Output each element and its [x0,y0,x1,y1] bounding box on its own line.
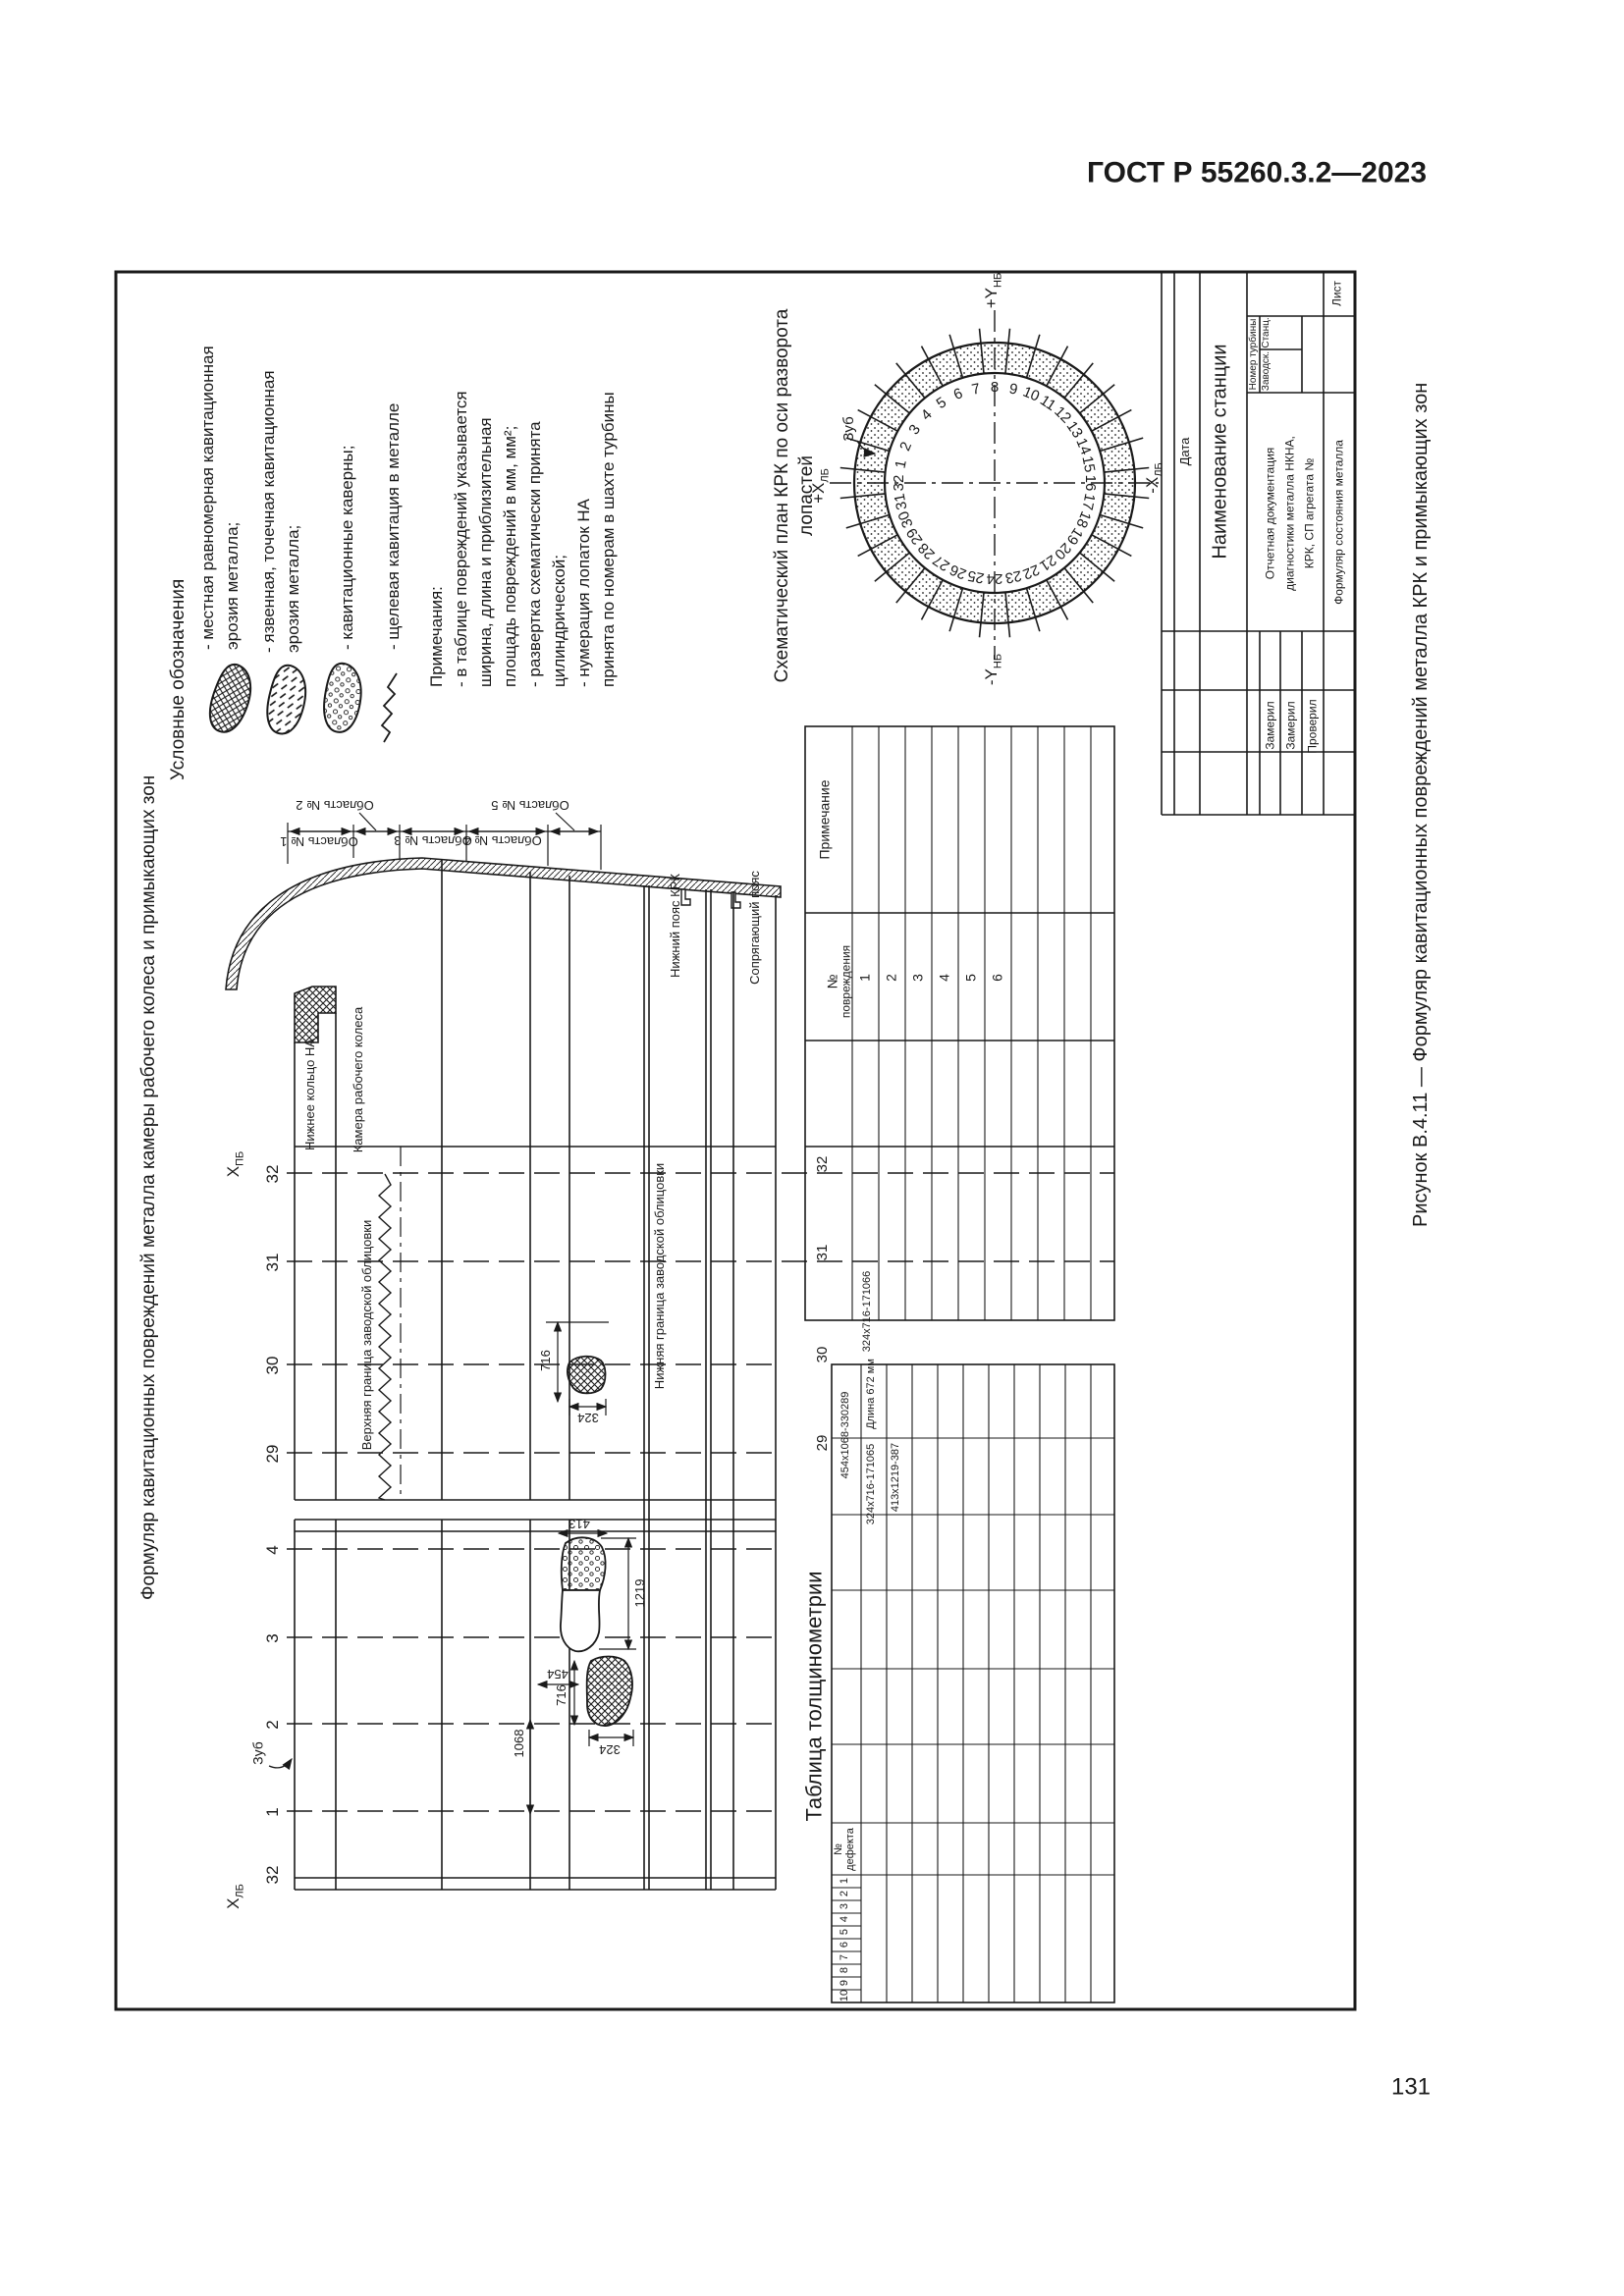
notes-line-2: - в таблице повреждений указывается [453,391,470,687]
development-grid [269,860,1114,1890]
thickness-row-number: 4 [839,1916,851,1922]
thickness-entry-2: Длина 672 мм [866,1359,878,1429]
damage-remark-header: Примечание [818,779,833,859]
upper-liner-boundary-label: Верхняя граница заводской облицовки [360,1220,374,1451]
legend-item-3-label: - кавитационные каверны; [339,446,356,650]
stamp-station-col-label: Станц. [1262,317,1272,347]
blade-number: 25 [966,567,985,586]
thickness-no-header-2: дефекта [845,1828,857,1871]
damage-row-number: 3 [911,974,926,982]
notes-line-1: Примечания: [428,586,446,687]
axis-label-x-plus: +ХЛБ [810,468,832,504]
form-title: Формуляр кавитационных повреждений метал… [139,775,159,1600]
damage-row-number: 4 [938,974,952,982]
axis-label-y-plus: +YНБ [983,273,1004,309]
section-number-upper: 32 [264,1165,282,1184]
stamp-turbine-no-label: Номер турбины [1249,319,1260,391]
upper-liner-zigzag [379,1174,391,1500]
blade-number: 23 [1003,567,1022,586]
legend-circles-blob-icon [322,663,363,734]
section-number-lower: 4 [264,1545,282,1554]
stamp-measured-2: Замерил [1285,701,1298,749]
axis-label-y-minus: -YНБ [983,654,1004,685]
damage-section-32: 32 [815,1156,831,1173]
thickness-entry-1: 454х1068-330289 [840,1392,852,1479]
stamp-measured-1: Замерил [1265,701,1277,749]
blade-number: 17 [1079,492,1098,510]
thickness-row-number: 8 [839,1967,851,1973]
rail-tooth [681,889,690,905]
zone-label-5: Область № 5 [491,798,568,812]
legend-dash-blob-icon [264,664,309,737]
legend-zigzag-icon [382,673,397,742]
dim-324-upper: 324 [577,1411,599,1424]
notes-line-6: цилиндрической; [551,555,568,687]
section-number-upper: 31 [264,1254,282,1272]
stamp-factory-col-label: Заводск. [1262,351,1272,391]
gost-header: ГОСТ Р 55260.3.2—2023 [1087,157,1427,188]
thickness-row-number: 5 [839,1929,851,1935]
damage-row-number: 6 [991,974,1005,982]
thickness-table-title: Таблица толщинометрии [802,1571,825,1821]
dim-716-lower: 716 [555,1684,568,1706]
damage-blob-crosshatch-upper [568,1357,606,1394]
band-label-ring: Нижнее кольцо НА [303,1039,317,1150]
section-number-lower: 3 [264,1633,282,1642]
blade-number: 8 [991,380,999,396]
thickness-entry-4: 413х1219-387 [891,1443,902,1512]
section-number-lower: 1 [264,1807,282,1816]
damage-no-header-1: № [826,974,840,988]
damage-no-header-2: повреждения [840,945,853,1018]
section-number-upper: 29 [264,1445,282,1464]
dim-454: 454 [547,1667,568,1681]
stamp-form-title: Формуляр состояния металла [1333,440,1346,605]
tooth-label-circle: Зуб [841,416,857,441]
blade-number: 32 [892,475,907,492]
notes-line-5: - развертка схематически принята [526,421,544,687]
damage-row-number: 1 [858,974,873,982]
stamp-doc-line-1: Отчетная документация [1265,448,1277,580]
dim-413: 413 [568,1517,590,1530]
damage-row-number: 5 [964,974,979,982]
thickness-row-number: 6 [839,1942,851,1948]
notes-line-3: ширина, длина и приблизительная [477,417,495,687]
damage-table-grid [805,726,1114,1320]
thickness-row-number: 1 [839,1878,851,1884]
damage-section-29: 29 [815,1435,831,1452]
dim-716-upper: 716 [539,1350,553,1371]
blade-number: 31 [893,492,911,510]
stamp-doc-line-3: КРК, СП агрегата № [1304,458,1317,568]
damage-blob-outline [561,1590,600,1651]
figure-caption: Рисунок В.4.11 — Формуляр кавитационных … [1411,383,1432,1227]
thickness-row-number: 9 [839,1980,851,1986]
page-number: 131 [1391,2074,1431,2099]
thickness-row-number: 7 [839,1954,851,1960]
legend-item-2-line-2: эрозия металла; [285,525,302,653]
thickness-row-number: 10 [839,1990,851,2002]
zone-label-2: Область № 2 [296,798,373,812]
notes-line-8: принята по номерам в шахте турбины [600,392,618,687]
damage-row-number: 2 [885,974,899,982]
band-label-mating-belt: Сопрягающий пояс [748,871,762,985]
legend-heading: Условные обозначения [169,579,189,780]
axis-label-x-minus: -ХЛБ [1144,462,1165,494]
dim-1068: 1068 [513,1730,526,1758]
stamp-station-name: Наименование станции [1211,344,1231,559]
damage-blob-caverns [562,1537,606,1590]
thickness-row-number: 3 [839,1903,851,1909]
development-axis-bottom: ХЛБ [225,1884,246,1909]
thickness-no-header-1: № [834,1843,845,1855]
section-number-lower: 2 [264,1720,282,1729]
band-label-lower-belt: Нижний пояс КРК [669,874,682,978]
circle-title-line-1: Схематический план КРК по оси разворота [773,309,792,683]
zone-label-4: Область № 4 [463,833,541,847]
damage-section-30: 30 [815,1347,831,1363]
stamp-checked: Проверил [1307,699,1320,753]
legend-symbols [205,661,397,742]
zone-label-3: Область № 3 [394,833,471,847]
band-label-chamber: Камера рабочего колеса [352,1007,365,1153]
damage-blob-crosshatch-lower [587,1657,632,1727]
lower-liner-boundary-label: Нижняя граница заводской облицовки [653,1163,667,1389]
legend-item-2-line-1: - язвенная, точечная кавитационная [260,370,278,653]
legend-item-1-line-2: эрозия металла; [224,522,242,650]
thickness-row-number: 2 [839,1891,851,1896]
legend-item-1-line-1: - местная равномерная кавитационная [199,346,217,650]
notes-line-4: площадь повреждений в мм, мм²; [502,426,519,687]
damage-section-31: 31 [815,1245,831,1261]
section-number-lower: 32 [264,1866,282,1885]
ring-section-block [295,987,336,1042]
tooth-label-development: Зуб [251,1741,266,1765]
stamp-date-label: Дата [1178,438,1192,466]
blade-number: 16 [1082,475,1098,492]
stamp-doc-line-2: диагностики металла НКНА, [1284,436,1297,591]
drawing-linework [0,0,1624,2296]
thickness-entry-3: 324х716-171065 [866,1444,878,1525]
legend-crosshatch-blob-icon [205,661,257,736]
stamp-sheet-label: Лист [1331,281,1344,306]
blade-number: 15 [1079,454,1098,473]
dim-324-lower: 324 [599,1742,621,1756]
document-page: ГОСТ Р 55260.3.2—2023 131 Рисунок В.4.11… [0,0,1624,2296]
dim-1219: 1219 [633,1579,647,1608]
tooth-pointer-development [269,1759,292,1768]
damage-entry-1: 324х716-171066 [862,1271,874,1353]
legend-item-4-label: - щелевая кавитация в металле [385,403,403,650]
blade-plan-circle [830,310,1159,660]
development-axis-top: ХПБ [225,1151,246,1178]
section-number-upper: 30 [264,1357,282,1375]
blade-number: 24 [987,570,1003,586]
notes-line-7: - нумерация лопаток НА [575,499,593,687]
zone-label-1: Область № 1 [280,834,357,848]
